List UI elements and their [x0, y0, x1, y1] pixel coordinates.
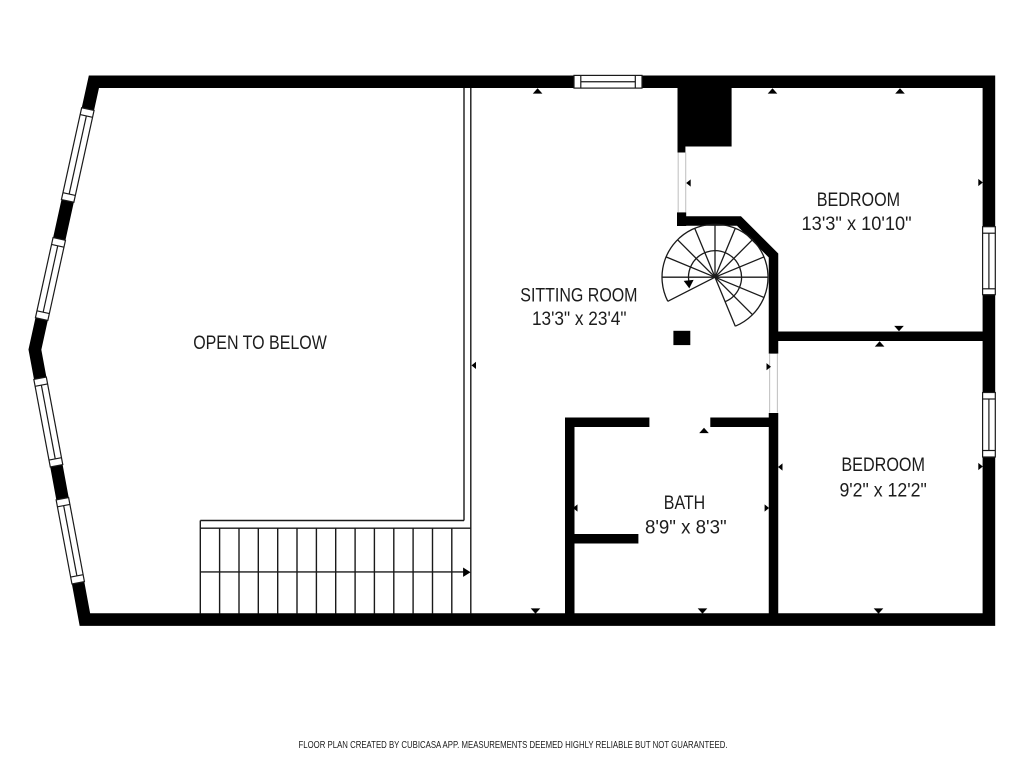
svg-text:SITTING ROOM: SITTING ROOM — [520, 286, 637, 307]
svg-text:13'3" x 10'10": 13'3" x 10'10" — [802, 214, 912, 235]
svg-text:13'3" x 23'4": 13'3" x 23'4" — [532, 309, 627, 330]
svg-text:BATH: BATH — [664, 493, 705, 514]
svg-text:FLOOR PLAN CREATED BY CUBICASA: FLOOR PLAN CREATED BY CUBICASA APP. MEAS… — [299, 739, 728, 751]
svg-text:9'2" x 12'2": 9'2" x 12'2" — [839, 480, 926, 501]
svg-text:BEDROOM: BEDROOM — [841, 455, 925, 476]
svg-text:BEDROOM: BEDROOM — [817, 190, 900, 211]
svg-text:8'9" x 8'3": 8'9" x 8'3" — [645, 517, 727, 538]
svg-text:OPEN TO BELOW: OPEN TO BELOW — [193, 333, 327, 354]
